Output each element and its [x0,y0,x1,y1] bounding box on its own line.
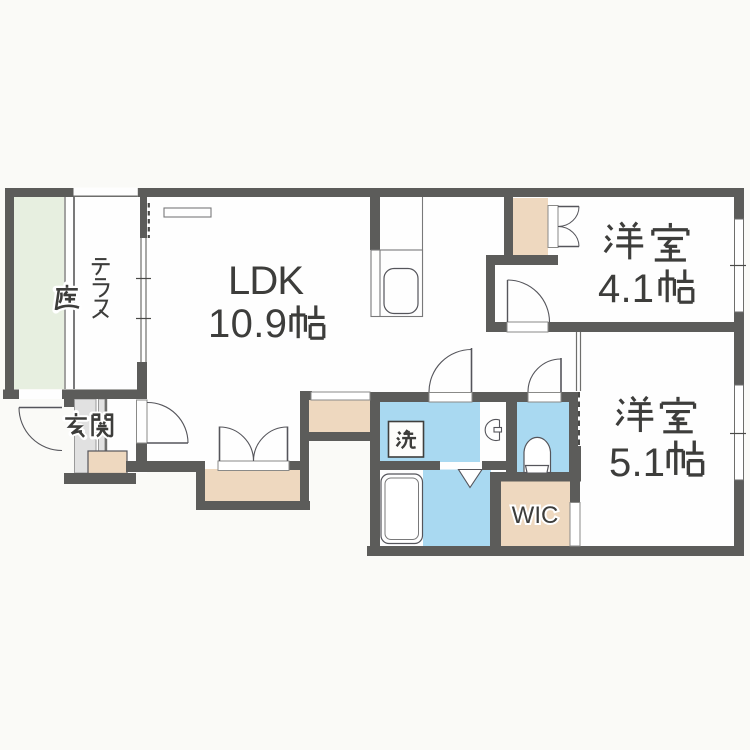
svg-text:4.1: 4.1 [598,267,654,311]
svg-text:LDK: LDK [228,259,304,303]
svg-text:WIC: WIC [512,502,559,529]
svg-text:10.9: 10.9 [208,302,287,346]
svg-text:5.1: 5.1 [609,441,665,485]
